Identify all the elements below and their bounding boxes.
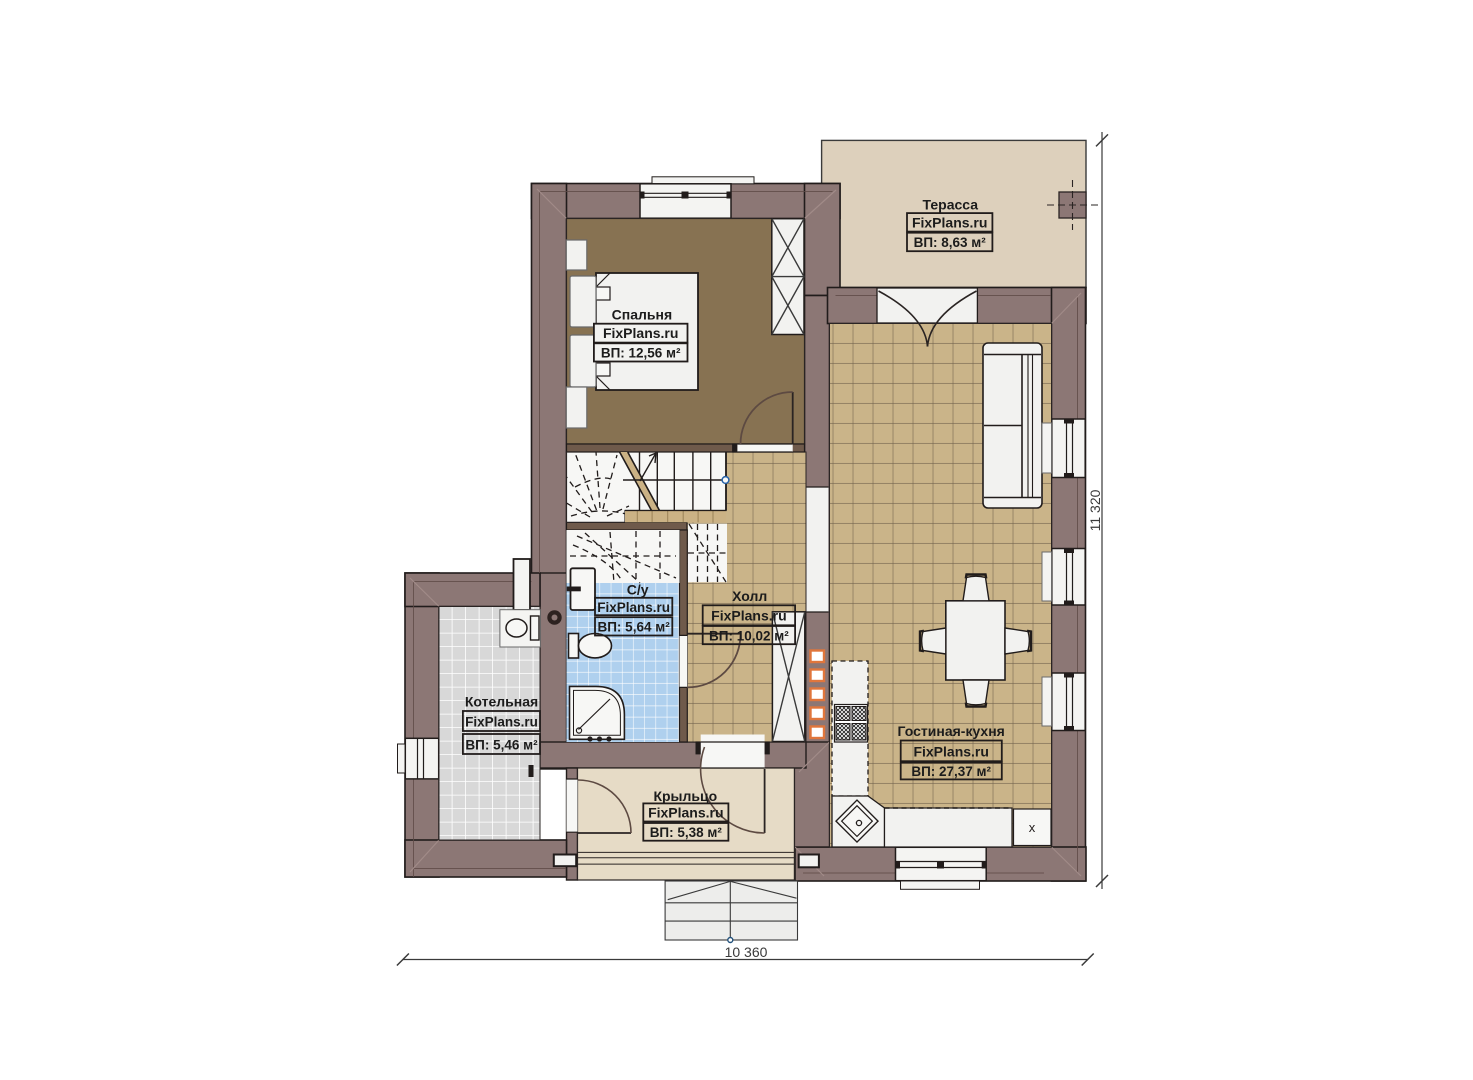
svg-text:Гостиная-кухня: Гостиная-кухня [898, 723, 1005, 739]
svg-text:FixPlans.ru: FixPlans.ru [711, 608, 786, 624]
svg-text:ВП: 5,38 м²: ВП: 5,38 м² [650, 825, 723, 840]
svg-text:Холл: Холл [732, 588, 767, 604]
svg-text:ВП: 10,02 м²: ВП: 10,02 м² [709, 629, 789, 644]
svg-text:Котельная: Котельная [465, 693, 538, 709]
svg-text:Спальня: Спальня [612, 307, 672, 323]
svg-text:FixPlans.ru: FixPlans.ru [912, 214, 987, 230]
svg-text:FixPlans.ru: FixPlans.ru [597, 600, 670, 615]
svg-text:ВП: 27,37 м²: ВП: 27,37 м² [911, 764, 991, 779]
svg-text:ВП: 5,64 м²: ВП: 5,64 м² [597, 620, 670, 635]
svg-text:11 320: 11 320 [1087, 489, 1103, 531]
svg-text:Крыльцо: Крыльцо [653, 788, 717, 804]
svg-text:ВП: 8,63 м²: ВП: 8,63 м² [914, 235, 987, 250]
svg-text:ВП: 5,46 м²: ВП: 5,46 м² [465, 738, 538, 753]
svg-text:FixPlans.ru: FixPlans.ru [648, 805, 723, 821]
svg-text:10 360: 10 360 [725, 944, 768, 960]
svg-text:FixPlans.ru: FixPlans.ru [465, 715, 538, 730]
svg-text:FixPlans.ru: FixPlans.ru [603, 325, 678, 341]
svg-text:Терасса: Терасса [923, 196, 979, 212]
svg-text:ВП: 12,56 м²: ВП: 12,56 м² [601, 346, 681, 361]
svg-text:FixPlans.ru: FixPlans.ru [913, 743, 988, 759]
svg-text:С/у: С/у [627, 582, 649, 598]
svg-text:x: x [1029, 820, 1036, 835]
